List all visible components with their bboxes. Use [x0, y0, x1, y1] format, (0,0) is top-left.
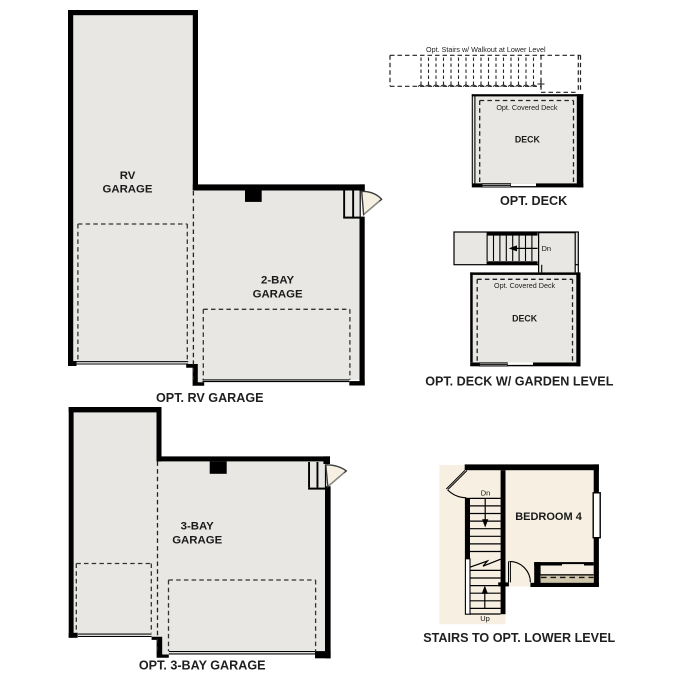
svg-text:3-BAY: 3-BAY [181, 521, 215, 533]
svg-text:RV: RV [120, 170, 136, 182]
svg-text:STAIRS TO OPT. LOWER LEVEL: STAIRS TO OPT. LOWER LEVEL [423, 631, 615, 645]
svg-text:Opt. Stairs w/ Walkout at Lowe: Opt. Stairs w/ Walkout at Lower Level [426, 45, 546, 54]
svg-text:Opt. Covered Deck: Opt. Covered Deck [494, 281, 556, 290]
svg-text:OPT. 3-BAY GARAGE: OPT. 3-BAY GARAGE [139, 659, 266, 673]
svg-text:OPT. DECK: OPT. DECK [500, 194, 567, 208]
svg-text:DECK: DECK [512, 313, 538, 323]
svg-text:OPT. DECK W/ GARDEN LEVEL: OPT. DECK W/ GARDEN LEVEL [425, 375, 614, 389]
svg-text:BEDROOM 4: BEDROOM 4 [515, 511, 583, 523]
svg-text:Dn: Dn [481, 489, 491, 498]
svg-text:GARAGE: GARAGE [253, 288, 303, 300]
svg-text:Up: Up [480, 614, 490, 623]
svg-text:Opt. Covered Deck: Opt. Covered Deck [496, 103, 558, 112]
svg-text:GARAGE: GARAGE [103, 184, 153, 196]
svg-text:GARAGE: GARAGE [172, 535, 222, 547]
svg-text:2-BAY: 2-BAY [261, 275, 295, 287]
svg-text:DECK: DECK [515, 135, 541, 145]
svg-text:Dn: Dn [542, 244, 552, 253]
svg-text:OPT. RV GARAGE: OPT. RV GARAGE [156, 391, 264, 405]
